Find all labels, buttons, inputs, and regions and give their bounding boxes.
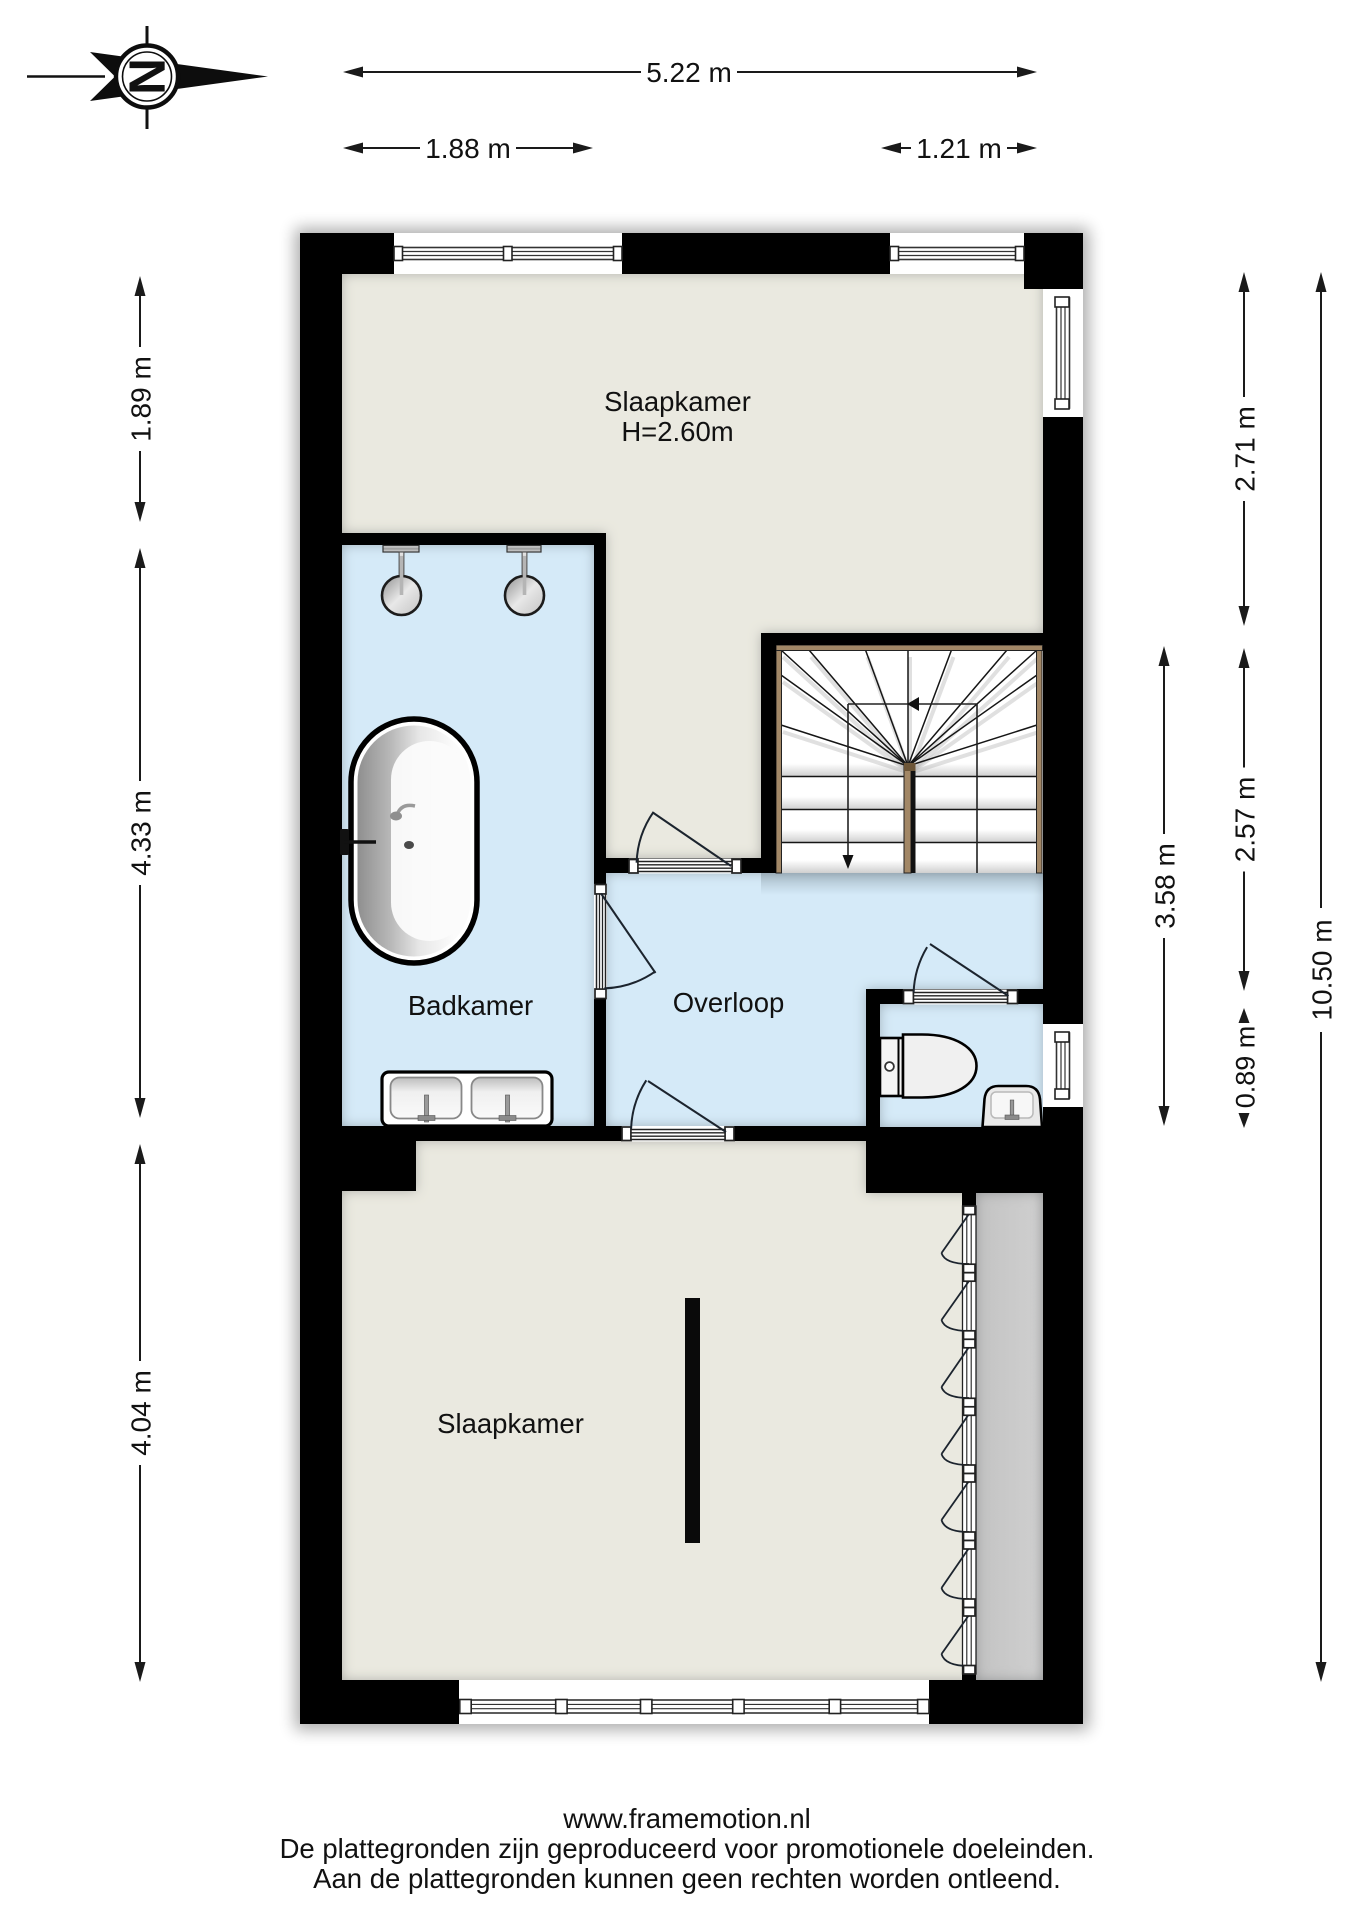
svg-text:H=2.60m: H=2.60m — [621, 416, 733, 447]
svg-text:2.71 m: 2.71 m — [1230, 406, 1261, 492]
svg-text:2.57 m: 2.57 m — [1230, 777, 1261, 863]
svg-text:Aan de plattegronden kunnen ge: Aan de plattegronden kunnen geen rechten… — [313, 1863, 1061, 1894]
svg-text:Slaapkamer: Slaapkamer — [604, 386, 751, 417]
svg-text:www.framemotion.nl: www.framemotion.nl — [562, 1803, 811, 1834]
svg-text:Slaapkamer: Slaapkamer — [437, 1408, 584, 1439]
svg-text:4.04 m: 4.04 m — [126, 1370, 157, 1456]
svg-text:N: N — [119, 58, 176, 95]
svg-text:3.58 m: 3.58 m — [1150, 843, 1181, 929]
svg-text:1.21 m: 1.21 m — [916, 133, 1002, 164]
svg-text:4.33 m: 4.33 m — [126, 790, 157, 876]
svg-text:1.88 m: 1.88 m — [425, 133, 511, 164]
svg-text:10.50 m: 10.50 m — [1307, 919, 1338, 1020]
svg-text:Badkamer: Badkamer — [408, 990, 533, 1021]
svg-text:De plattegronden zijn geproduc: De plattegronden zijn geproduceerd voor … — [280, 1833, 1095, 1864]
svg-text:5.22 m: 5.22 m — [646, 57, 732, 88]
svg-text:Overloop: Overloop — [673, 987, 785, 1018]
svg-text:1.89 m: 1.89 m — [126, 356, 157, 442]
svg-text:0.89 m: 0.89 m — [1231, 1026, 1261, 1109]
